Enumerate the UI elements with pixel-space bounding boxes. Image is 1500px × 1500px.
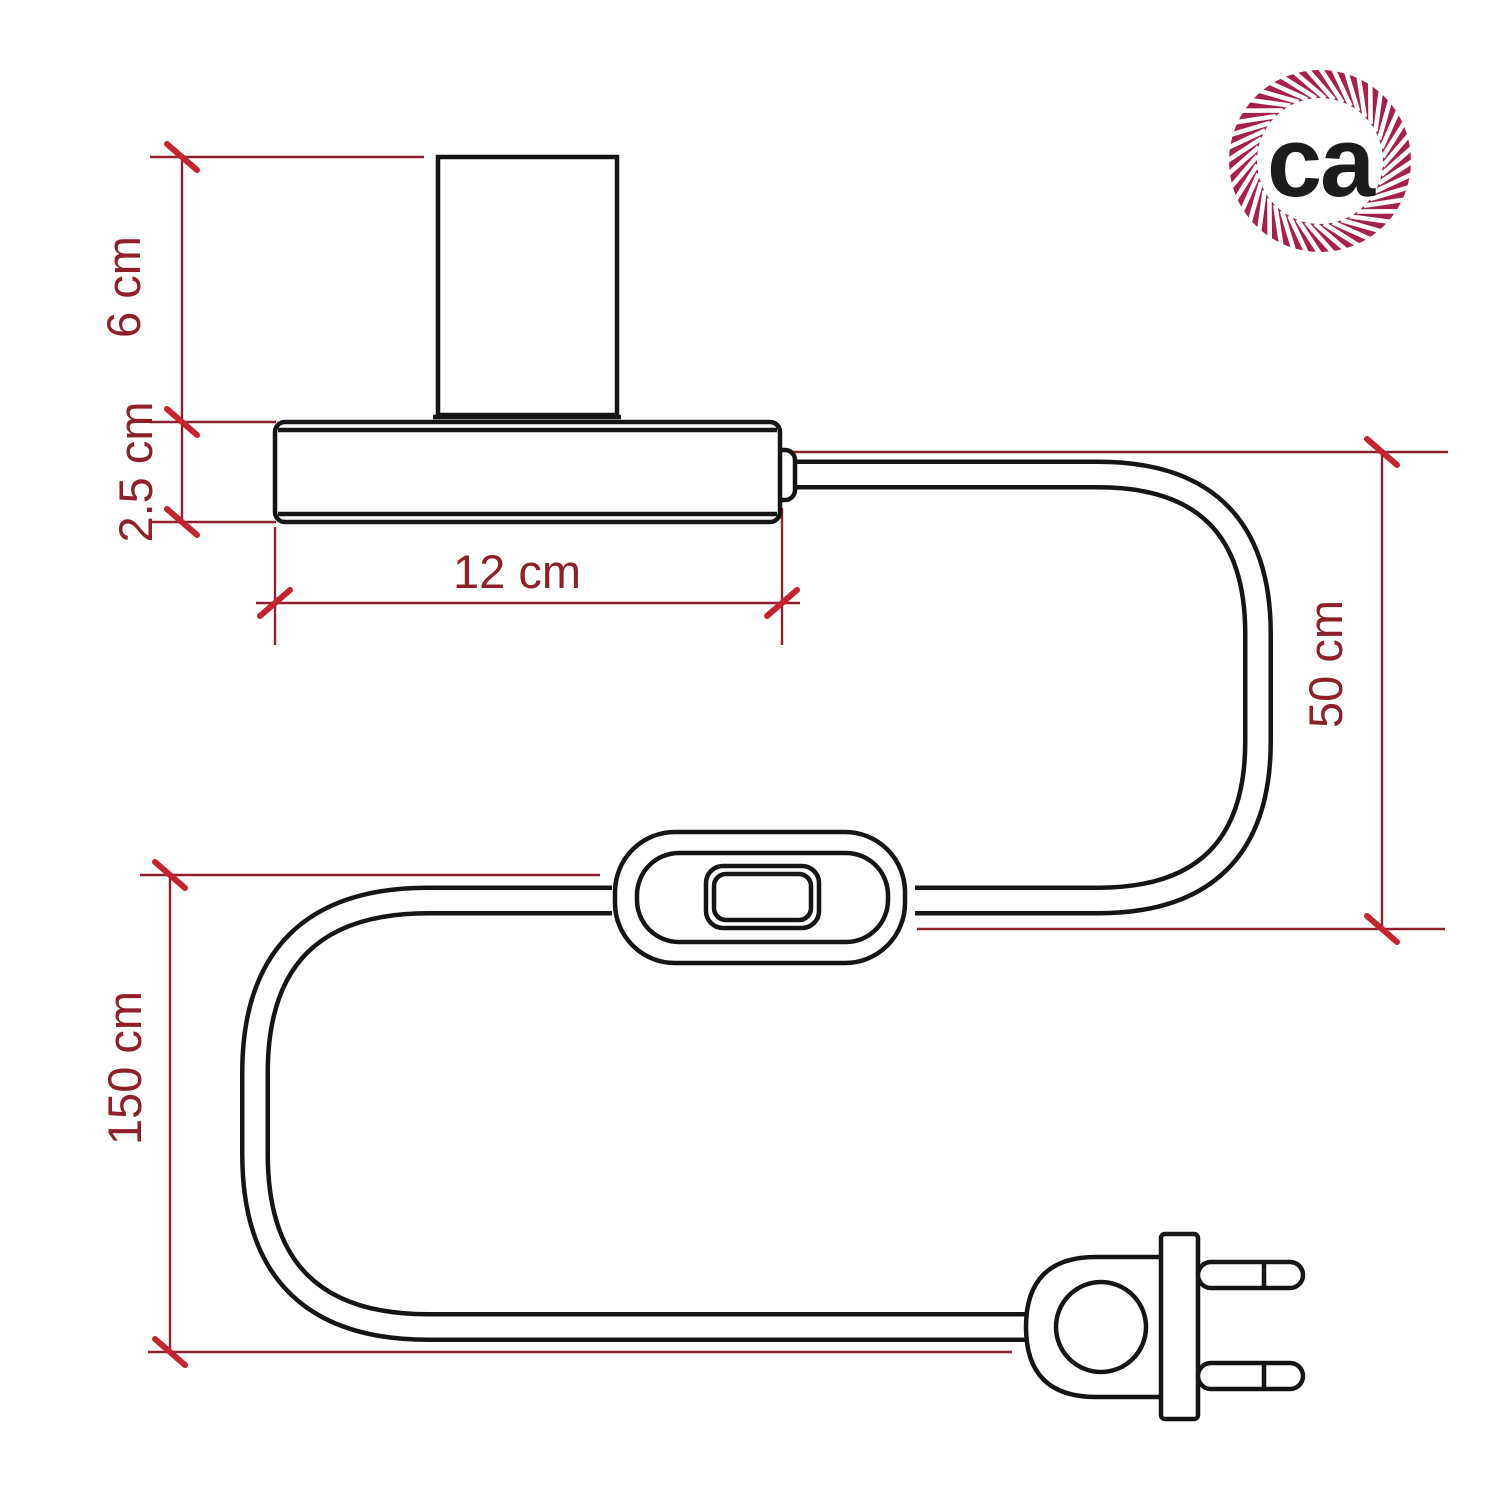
- logo-text: ca: [1267, 106, 1376, 217]
- switch-button: [706, 866, 819, 928]
- cable-switch-to-plug: [255, 901, 1040, 1328]
- dimension-label-cable-switch-to-plug: 150 cm: [98, 991, 151, 1145]
- plug-prong-bottom: [1198, 1363, 1303, 1389]
- dimension-socket-height: 6 cm: [97, 144, 424, 422]
- dimension-label-base-thickness: 2.5 cm: [109, 401, 162, 542]
- dimension-label-base-width: 12 cm: [453, 545, 581, 598]
- plug-body: [1026, 1257, 1163, 1397]
- two-prong-plug: [1026, 1234, 1303, 1419]
- inline-switch: [615, 832, 905, 963]
- dimension-base-width: 12 cm: [256, 508, 800, 645]
- dimension-base-thickness: 2.5 cm: [109, 401, 276, 542]
- diagram-canvas: 6 cm 2.5 cm 12 cm 50 cm: [0, 0, 1500, 1500]
- plug-faceplate: [1161, 1234, 1198, 1419]
- brand-logo: ca: [1226, 67, 1414, 255]
- plug-prong-top: [1198, 1262, 1303, 1288]
- lamp-socket: [433, 157, 621, 417]
- dimension-label-cable-lamp-to-switch: 50 cm: [1299, 600, 1352, 728]
- dimension-label-socket-height: 6 cm: [97, 236, 150, 338]
- lamp-base: [275, 422, 795, 522]
- lamp-dimension-diagram: 6 cm 2.5 cm 12 cm 50 cm: [0, 0, 1500, 1500]
